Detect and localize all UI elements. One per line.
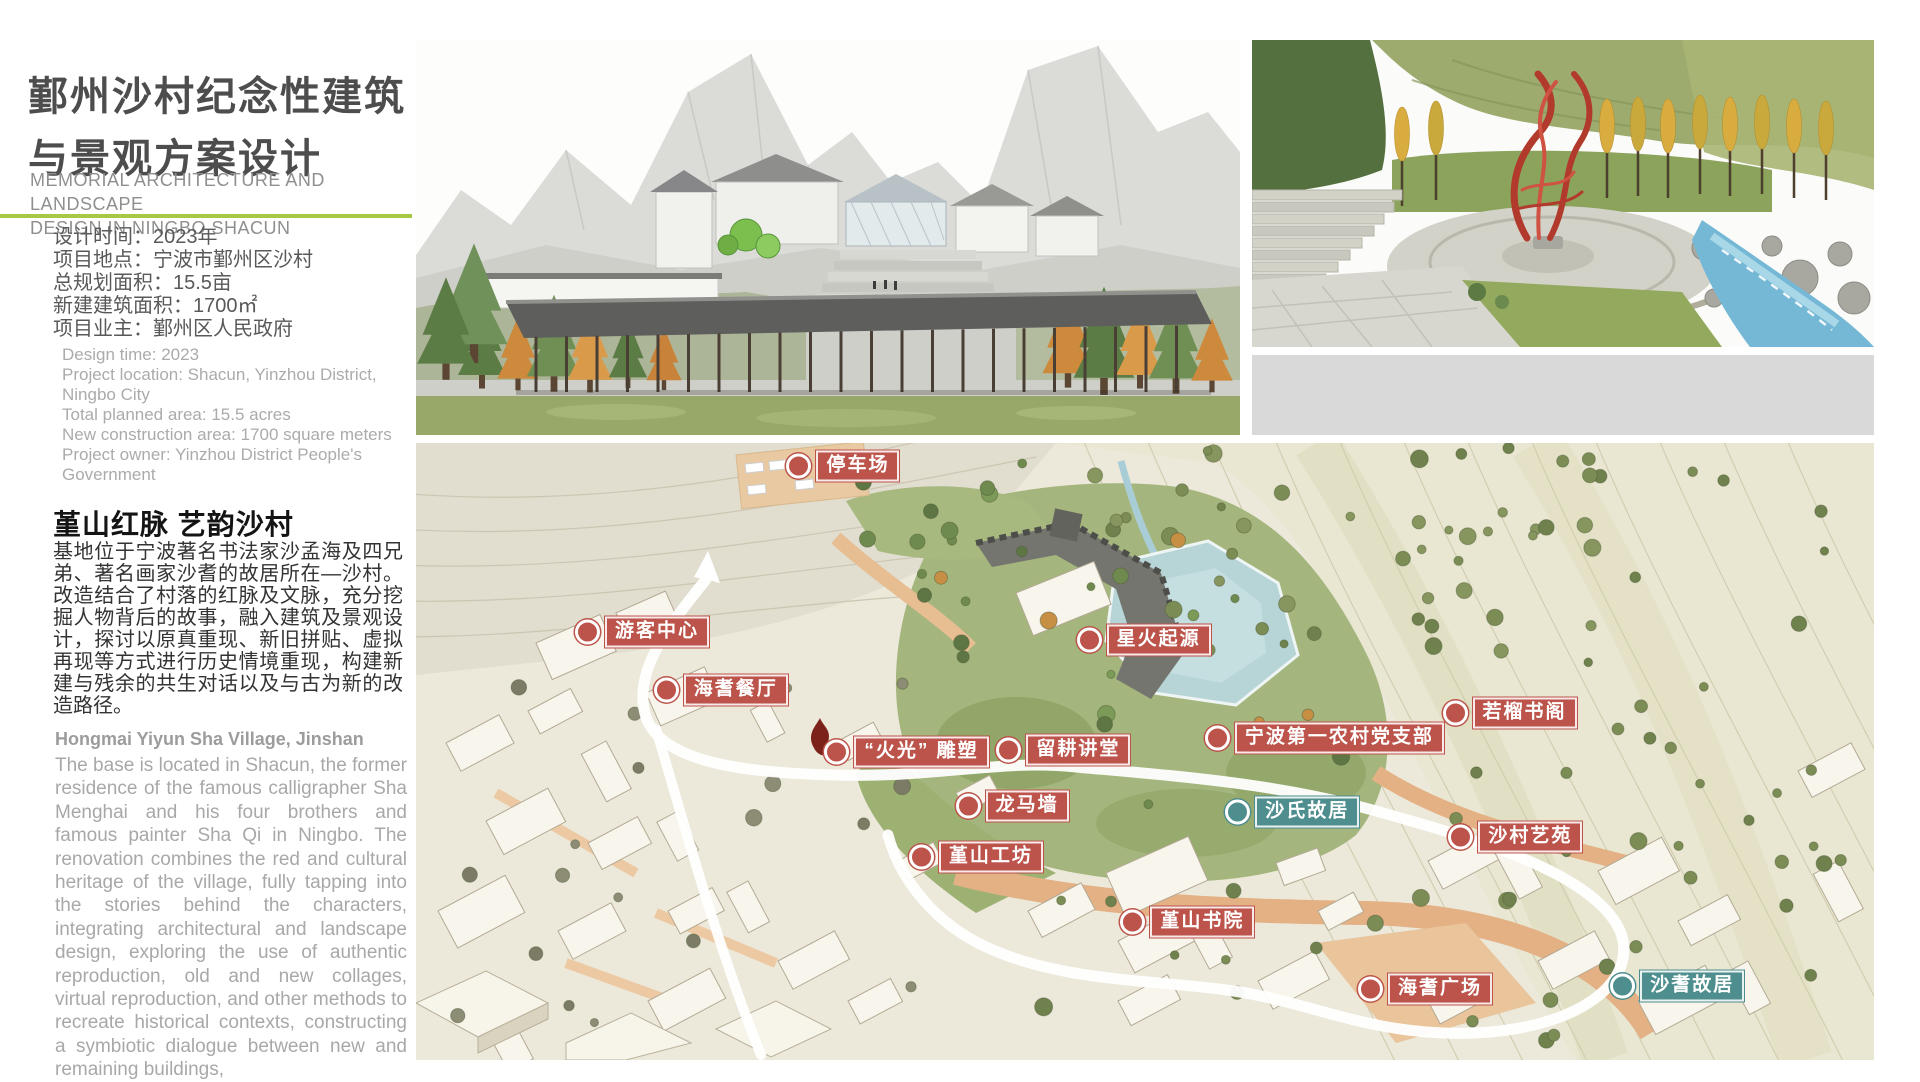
location-marker-icon xyxy=(1077,627,1102,652)
location-marker-icon xyxy=(909,845,934,870)
project-info-line-zh: 新建建筑面积：1700㎡ xyxy=(53,295,313,318)
plan-label-text: 龙马墙 xyxy=(986,790,1069,821)
plan-label: 星火起源 xyxy=(1077,624,1211,655)
plan-label: 海耆广场 xyxy=(1358,974,1492,1005)
project-info-line-en: Total planned area: 15.5 acres xyxy=(62,405,398,425)
plan-label: 堇山书院 xyxy=(1120,906,1254,937)
plan-label-text: 堇山工坊 xyxy=(939,842,1043,873)
plan-label-text: 停车场 xyxy=(816,450,899,481)
location-marker-icon xyxy=(1448,825,1473,850)
location-marker-icon xyxy=(996,738,1021,763)
plan-label-text: “火光” 雕塑 xyxy=(854,737,988,768)
project-info-zh: 设计时间：2023年项目地点：宁波市鄞州区沙村总规划面积：15.5亩新建建筑面积… xyxy=(53,226,313,341)
plan-label: 堇山工坊 xyxy=(909,842,1043,873)
intro-paragraph-en: The base is located in Shacun, the forme… xyxy=(55,754,407,1082)
plan-label: 沙村艺苑 xyxy=(1448,822,1582,853)
site-plan: 停车场 游客中心 海耆餐厅 “火光” 雕塑 xyxy=(416,443,1874,1060)
plan-label-text: 星火起源 xyxy=(1107,624,1211,655)
intro-paragraph-zh: 基地位于宁波著名书法家沙孟海及四兄弟、著名画家沙耆的故居所在—沙村。改造结合了村… xyxy=(53,541,403,717)
plan-label: 留耕讲堂 xyxy=(996,735,1130,766)
plan-label-text: 海耆餐厅 xyxy=(684,674,788,705)
courtyard-illustration xyxy=(416,40,1240,435)
location-marker-icon xyxy=(1120,909,1145,934)
project-info-line-zh: 设计时间：2023年 xyxy=(53,226,313,249)
location-marker-icon xyxy=(575,619,600,644)
sculpture-illustration xyxy=(1252,40,1874,347)
location-marker-icon xyxy=(824,740,849,765)
plan-label-text: 沙氏故居 xyxy=(1255,796,1359,827)
location-marker-icon xyxy=(1225,799,1250,824)
project-info-line-zh: 项目业主：鄞州区人民政府 xyxy=(53,318,313,341)
plan-label: 海耆餐厅 xyxy=(654,674,788,705)
accent-divider xyxy=(0,214,412,218)
rendering-sculpture-view xyxy=(1252,40,1874,347)
page-subtitle-line1: MEMORIAL ARCHITECTURE AND LANDSCAPE xyxy=(30,168,416,216)
location-marker-icon xyxy=(1610,973,1635,998)
plan-label-text: 沙耆故居 xyxy=(1640,970,1744,1001)
plan-label: 若榴书阁 xyxy=(1443,698,1577,729)
plan-label-text: 宁波第一农村党支部 xyxy=(1235,722,1444,753)
plan-label-text: 堇山书院 xyxy=(1150,906,1254,937)
plan-label-text: 游客中心 xyxy=(605,616,709,647)
project-info-line-en: New construction area: 1700 square meter… xyxy=(62,425,398,445)
project-info-line-zh: 总规划面积：15.5亩 xyxy=(53,272,313,295)
presentation-board: 鄞州沙村纪念性建筑 与景观方案设计 MEMORIAL ARCHITECTURE … xyxy=(0,0,1920,1080)
rendering-courtyard-view xyxy=(416,40,1240,435)
plan-label: 沙耆故居 xyxy=(1610,970,1744,1001)
project-info-en: Design time: 2023Project location: Shacu… xyxy=(62,345,398,485)
plan-label-text: 海耆广场 xyxy=(1388,974,1492,1005)
location-marker-icon xyxy=(654,677,679,702)
info-column: 鄞州沙村纪念性建筑 与景观方案设计 MEMORIAL ARCHITECTURE … xyxy=(0,0,416,1080)
plan-labels: 停车场 游客中心 海耆餐厅 “火光” 雕塑 xyxy=(416,443,1874,1060)
plan-label: 停车场 xyxy=(786,450,899,481)
plan-label-text: 沙村艺苑 xyxy=(1478,822,1582,853)
project-info-line-en: Project owner: Yinzhou District People's… xyxy=(62,445,398,485)
location-marker-icon xyxy=(1205,725,1230,750)
page-title-line1: 鄞州沙村纪念性建筑 xyxy=(28,66,406,128)
project-info-line-en: Design time: 2023 xyxy=(62,345,398,365)
section-heading-zh: 堇山红脉 艺韵沙村 xyxy=(53,503,294,543)
plan-label: 游客中心 xyxy=(575,616,709,647)
plan-label-text: 留耕讲堂 xyxy=(1026,735,1130,766)
location-marker-icon xyxy=(1443,701,1468,726)
plan-label: 宁波第一农村党支部 xyxy=(1205,722,1444,753)
plan-label: 龙马墙 xyxy=(956,790,1069,821)
location-marker-icon xyxy=(956,793,981,818)
plan-label: 沙氏故居 xyxy=(1225,796,1359,827)
plan-label-text: 若榴书阁 xyxy=(1473,698,1577,729)
plan-label: “火光” 雕塑 xyxy=(824,737,988,768)
project-info-line-en: Project location: Shacun, Yinzhou Distri… xyxy=(62,365,398,405)
image-placeholder xyxy=(1252,355,1874,435)
location-marker-icon xyxy=(1358,977,1383,1002)
project-info-line-zh: 项目地点：宁波市鄞州区沙村 xyxy=(53,249,313,272)
section-heading-en: Hongmai Yiyun Sha Village, Jinshan xyxy=(55,729,364,750)
location-marker-icon xyxy=(786,453,811,478)
